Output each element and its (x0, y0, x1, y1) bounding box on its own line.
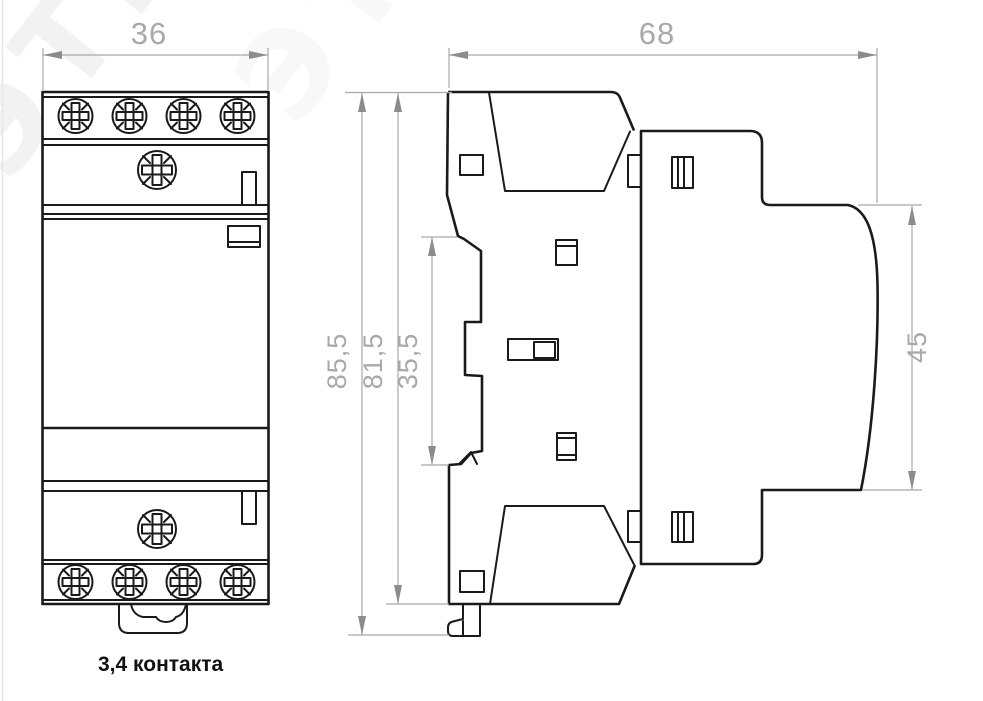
cover-panel-outline (641, 131, 878, 564)
screw-icon (59, 565, 93, 599)
dim-label-height-body: 81,5 (358, 333, 388, 390)
cover-vent-bottom-slats (678, 512, 684, 542)
side-outline (447, 92, 635, 604)
front-outline (43, 92, 269, 604)
extension-lines (421, 237, 457, 465)
din-clip-front-inner (131, 604, 186, 622)
side-hole-top (460, 155, 483, 175)
cover-marker-bottom (628, 511, 641, 542)
dim-label-height-cover: 45 (902, 331, 932, 363)
dim-arrow-down-icon (394, 585, 402, 604)
terminal-screws-bottom (59, 565, 255, 599)
indicator-window-frame (228, 226, 260, 247)
dim-arrow-down-icon (428, 446, 436, 465)
dim-arrow-up-icon (908, 206, 916, 225)
drawing-caption: 3,4 контакта (98, 653, 224, 676)
cover-vent-top-frame (672, 157, 693, 188)
dim-label-height-din-notch: 35,5 (393, 333, 423, 390)
cover-marker-top (628, 155, 641, 187)
screw-icon (167, 565, 201, 599)
din-clip-front (119, 604, 187, 633)
dim-arrow-down-icon (358, 616, 366, 635)
contactor-dimension-drawing: ЭТМ ЭТМ (0, 0, 983, 701)
cover-vent-top (672, 157, 693, 188)
side-rect-lower-lines (557, 438, 576, 455)
side-hole-bottom (460, 571, 484, 592)
terminal-screws-top (59, 99, 255, 133)
cover-panel (628, 131, 878, 564)
screw-icon (221, 99, 255, 133)
front-view (43, 92, 269, 633)
dim-arrow-right-icon (858, 51, 877, 59)
terminal-housing-top (489, 93, 630, 192)
front-slot-top (242, 172, 256, 205)
switch-knob (534, 342, 555, 358)
dim-arrow-down-icon (908, 471, 916, 490)
dim-arrow-left-icon (449, 51, 468, 59)
dimension-side-depth: 68 (449, 16, 877, 203)
cover-vent-top-slats (678, 157, 684, 188)
screw-icon (167, 99, 201, 133)
center-screw-icon-bottom (138, 510, 176, 548)
indicator-window (228, 226, 260, 247)
din-clip-front-outer (119, 604, 187, 633)
front-slot-bottom (242, 491, 256, 524)
screw-icon (113, 99, 147, 133)
dim-arrow-up-icon (358, 93, 366, 112)
screw-icon (221, 565, 255, 599)
side-mid-details (508, 240, 577, 460)
screw-icon (113, 565, 147, 599)
dim-arrow-up-icon (428, 237, 436, 256)
dimension-height-din-notch: 35,5 (393, 237, 457, 465)
dim-label-side-depth: 68 (639, 16, 675, 51)
watermark-text-faint: ЭТМ (208, 0, 529, 148)
din-clip-side (448, 604, 480, 636)
cover-vent-bottom (672, 512, 693, 542)
side-view (447, 92, 878, 636)
terminal-housing-bottom (490, 506, 634, 604)
technical-drawing-page: ЭТМ ЭТМ (0, 0, 983, 701)
center-screw-icon-top (138, 151, 176, 189)
cover-vent-bottom-frame (672, 512, 693, 542)
side-rect-upper (556, 240, 577, 265)
dim-label-front-width: 36 (131, 16, 167, 51)
dim-label-height-total: 85,5 (322, 333, 352, 390)
dim-arrow-up-icon (394, 93, 402, 112)
extension-lines (449, 48, 877, 203)
